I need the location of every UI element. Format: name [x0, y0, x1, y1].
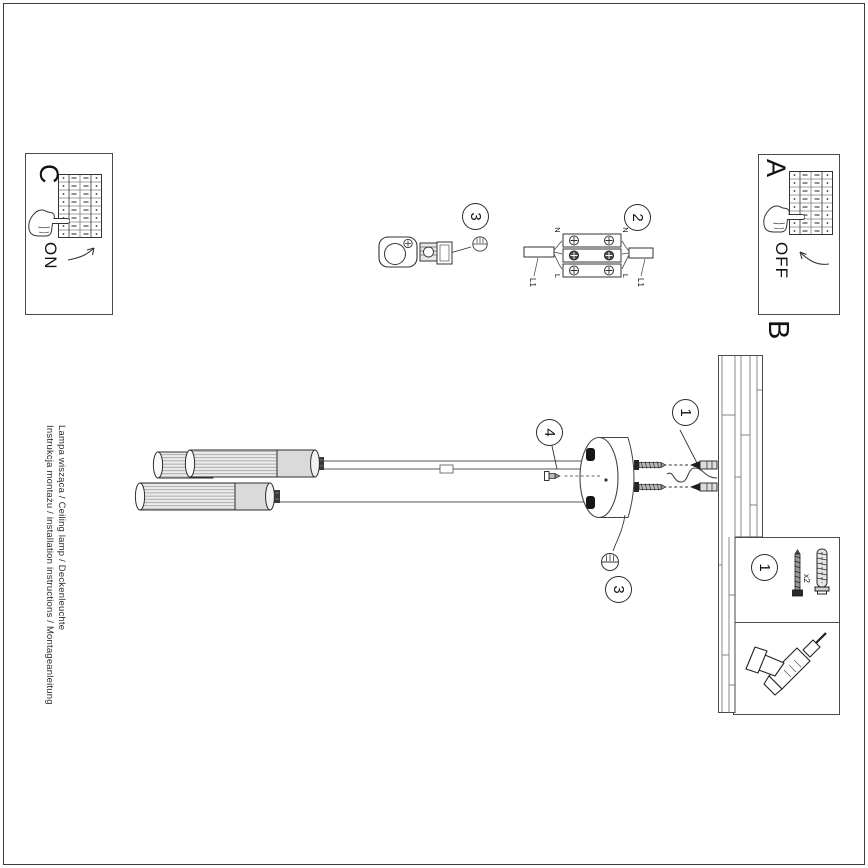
step-box-c: C ON [25, 153, 113, 315]
label-l-bottom: L [553, 274, 562, 278]
flip-down-arrow-icon [800, 252, 829, 264]
callout-1-number: 1 [677, 408, 694, 416]
anchor-screw-column-right [634, 482, 717, 492]
lamp-wire-bottom [524, 241, 562, 269]
screw-leader [613, 515, 625, 551]
callout-2: 2 [624, 204, 651, 231]
terminal-block: N N L L [553, 227, 630, 278]
callout-4: 4 [536, 419, 563, 446]
parts-qty-label: x2 [802, 574, 812, 583]
callout-4-number: 4 [541, 428, 558, 436]
callout-3-clamp: 3 [462, 203, 489, 230]
rotated-sheet: A OFF B x2 [0, 0, 868, 868]
step-label-b: B [763, 320, 792, 339]
l1-leader-top [641, 259, 645, 276]
footer-product-line: Lampa wisząca / Ceiling lamp / Deckenleu… [56, 425, 67, 630]
label-l1-top: L1 [636, 278, 645, 287]
mounting-screw-icon [793, 549, 803, 596]
mains-cable-icon [667, 468, 717, 482]
callout-3-canopy-number: 3 [610, 585, 627, 593]
screw-head-icon [473, 237, 487, 251]
cable-clamp-detail [371, 230, 493, 290]
label-n-bottom: N [553, 227, 562, 232]
shade-front-left [185, 450, 324, 477]
callout-1-parts-number: 1 [756, 563, 773, 571]
step-box-a: A OFF [758, 154, 840, 315]
callout-4-leader [552, 446, 557, 469]
callout-1-leader [680, 430, 697, 463]
breaker-panel-icon [790, 172, 833, 235]
breaker-off-illustration [759, 155, 839, 314]
wall-plug-icon [815, 549, 829, 594]
label-l-top: L [621, 274, 630, 278]
callout-1: 1 [672, 399, 699, 426]
cord-grip-left [586, 448, 595, 461]
mounting-bracket [379, 237, 417, 267]
switch-on-text: ON [40, 242, 60, 270]
cord-joiner [440, 465, 453, 473]
ceiling-section [716, 355, 765, 713]
mains-wire-top [622, 241, 653, 269]
canopy [580, 438, 634, 518]
cord-grip-right [586, 496, 595, 509]
footer-instruction-line: Instrukcja montażu / installation instru… [44, 425, 55, 705]
step-label-c: C [35, 164, 62, 184]
switch-off-text: OFF [771, 242, 791, 279]
breaker-panel-icon [59, 175, 102, 238]
instruction-sheet: A OFF B x2 [0, 0, 868, 868]
callout-3-clamp-number: 3 [467, 212, 484, 220]
anchor-screw-column-left [634, 460, 717, 470]
shade-right [135, 483, 280, 510]
canopy-screw-detail [588, 510, 633, 585]
step-label-a: A [762, 159, 789, 177]
callout-1-parts: 1 [751, 554, 778, 581]
flip-up-arrow-icon [68, 248, 94, 260]
strain-relief-block [420, 242, 452, 264]
label-l1-bottom: L1 [528, 278, 537, 287]
callout-3-canopy: 3 [605, 576, 632, 603]
pendant-lamp [133, 425, 643, 535]
callout-2-number: 2 [629, 213, 646, 221]
l1-leader-bottom [534, 258, 538, 276]
screw-head-icon [602, 554, 619, 571]
